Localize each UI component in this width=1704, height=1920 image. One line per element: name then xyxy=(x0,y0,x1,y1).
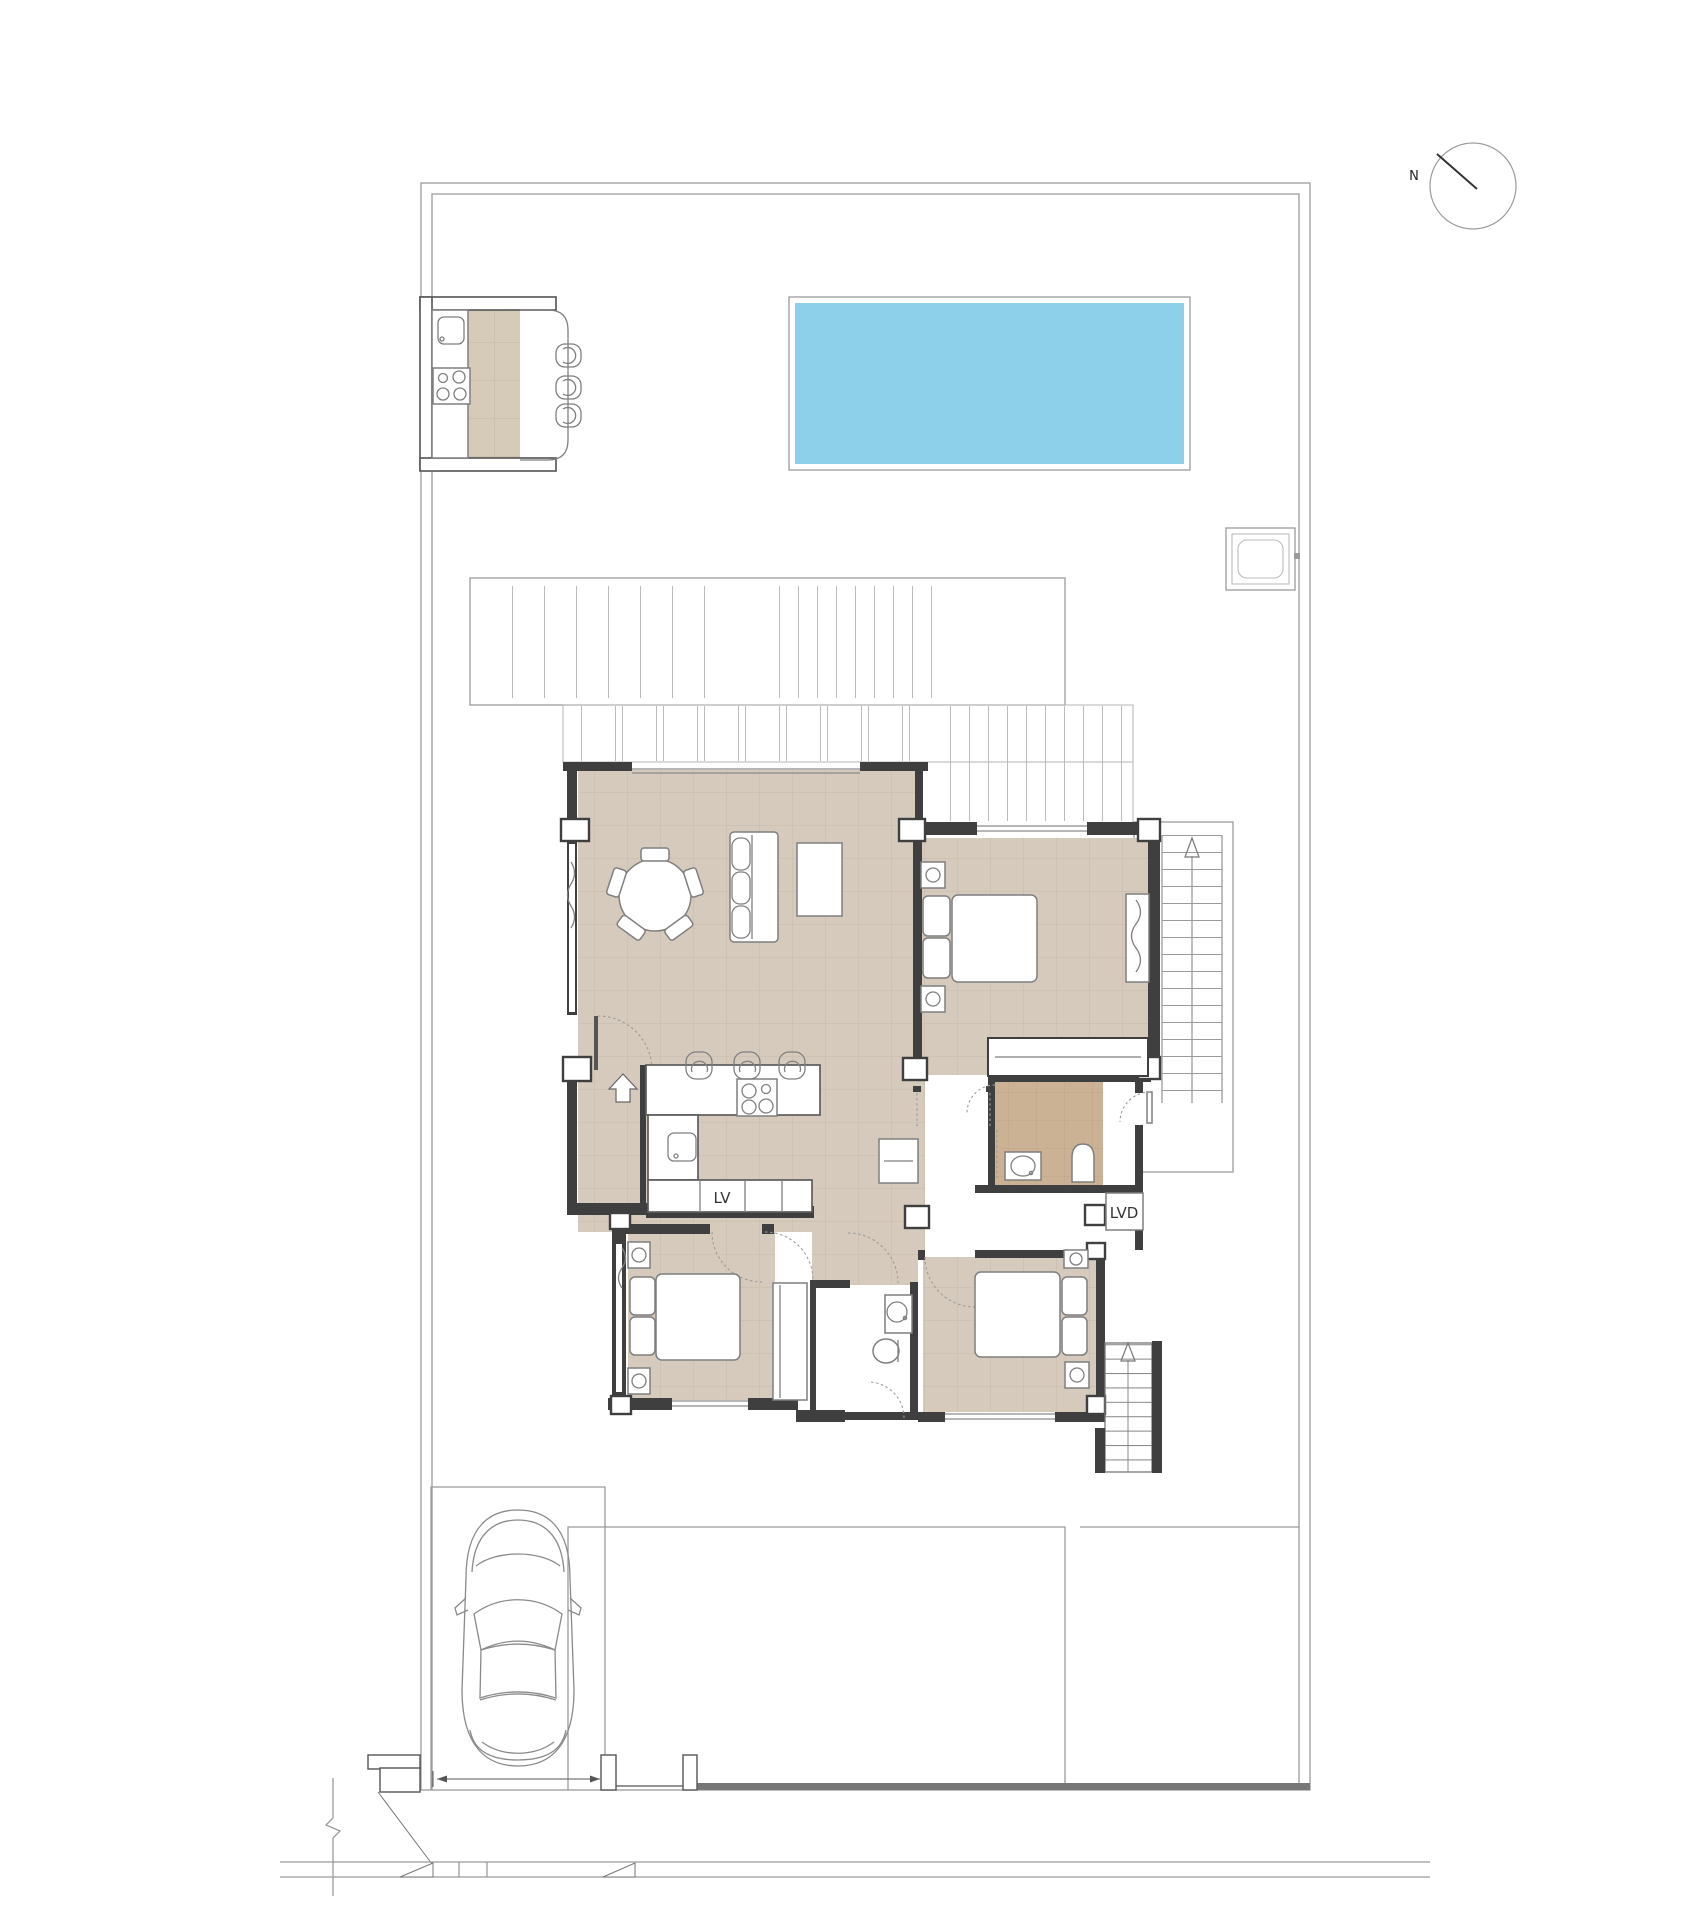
nightstand xyxy=(921,862,945,888)
north-label: N xyxy=(1409,169,1419,184)
outdoor-kitchen xyxy=(420,297,581,471)
nightstand xyxy=(921,986,945,1012)
pool-water xyxy=(795,303,1184,464)
central-bathroom xyxy=(873,1295,912,1363)
pool-equipment-box xyxy=(1226,528,1300,590)
north-arrow-icon: N xyxy=(1409,143,1516,229)
bar-counter xyxy=(520,310,568,460)
street-boundary xyxy=(280,1755,1430,1896)
outdoor-kitchen-top-wall xyxy=(420,297,556,310)
swimming-pool xyxy=(789,297,1190,470)
patio-lines xyxy=(568,1527,1299,1790)
dropped-kerb xyxy=(603,1863,635,1877)
coffee-table xyxy=(797,843,842,916)
nightstand xyxy=(628,1368,650,1394)
sofa xyxy=(730,832,778,942)
toilet xyxy=(873,1339,899,1363)
driveway-gate-swing xyxy=(378,1792,432,1864)
break-symbol xyxy=(326,1818,340,1838)
dimension-line xyxy=(433,1771,603,1787)
nightstand xyxy=(628,1242,650,1268)
parking xyxy=(431,1487,605,1790)
nightstand xyxy=(1065,1362,1089,1388)
outdoor-counter-strip xyxy=(467,310,520,460)
entrance-door-leaf xyxy=(594,1016,598,1070)
gate-pier xyxy=(601,1755,616,1790)
wardrobe xyxy=(773,1283,807,1400)
dishwasher-label: LV xyxy=(714,1189,732,1207)
parking-outline xyxy=(431,1487,605,1790)
gate-pier xyxy=(683,1755,697,1790)
outdoor-kitchen-left-wall xyxy=(420,297,432,470)
double-bed xyxy=(656,1274,740,1360)
car xyxy=(455,1510,581,1766)
driveway-gate-pier xyxy=(368,1755,420,1792)
exterior-stairs-lower xyxy=(1095,1341,1162,1473)
dropped-kerb xyxy=(400,1863,433,1877)
washbasin xyxy=(885,1295,912,1333)
double-bed xyxy=(975,1272,1060,1357)
sidewalk xyxy=(280,1778,1430,1896)
toilet xyxy=(1072,1144,1094,1182)
floor-plan-canvas: N xyxy=(0,0,1704,1920)
washer-label: LVD xyxy=(1110,1204,1139,1222)
hall-closet xyxy=(879,1139,918,1183)
kitchen-island xyxy=(646,1065,820,1115)
kitchen-left-counter xyxy=(648,1115,698,1180)
double-bed xyxy=(952,895,1037,982)
